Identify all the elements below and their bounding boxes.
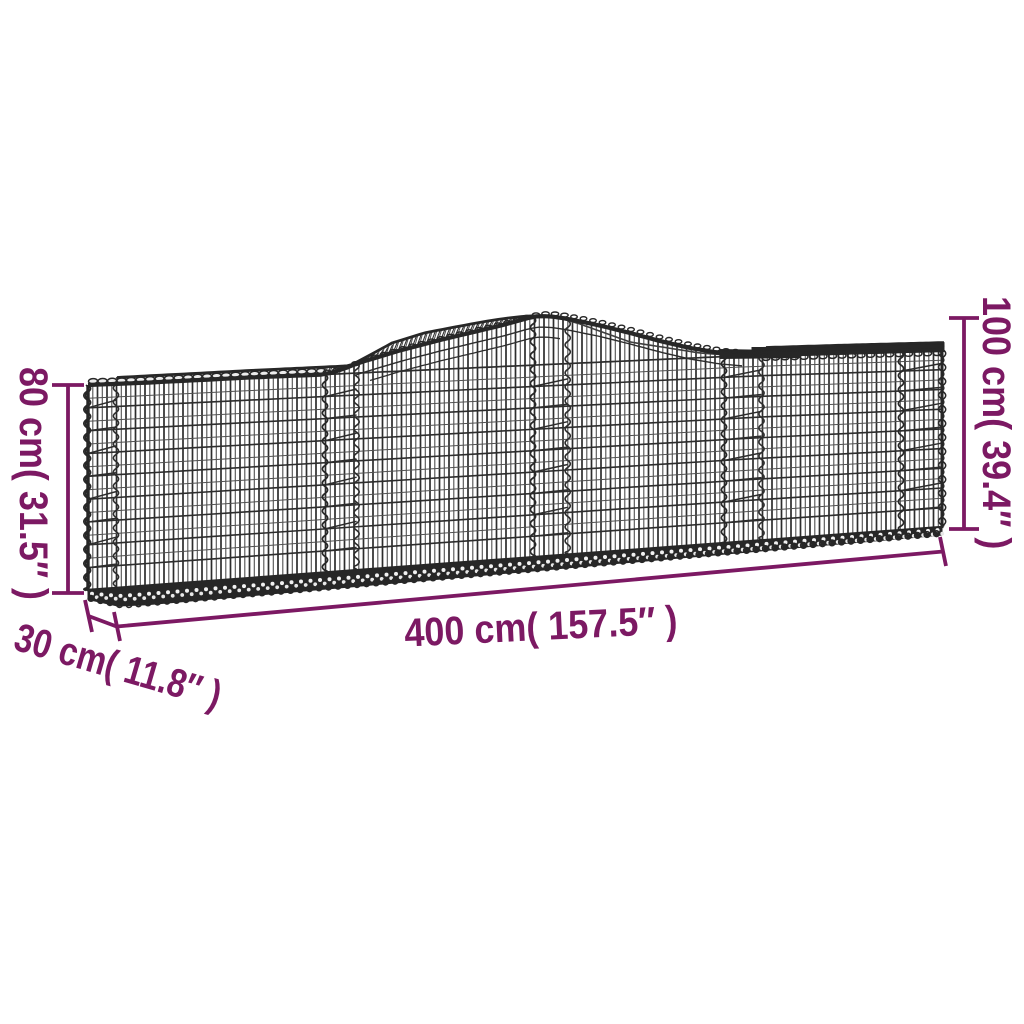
svg-text:80 cm( 31.5″ ): 80 cm( 31.5″ ) — [11, 367, 55, 600]
svg-text:100 cm( 39.4″ ): 100 cm( 39.4″ ) — [974, 296, 1018, 549]
